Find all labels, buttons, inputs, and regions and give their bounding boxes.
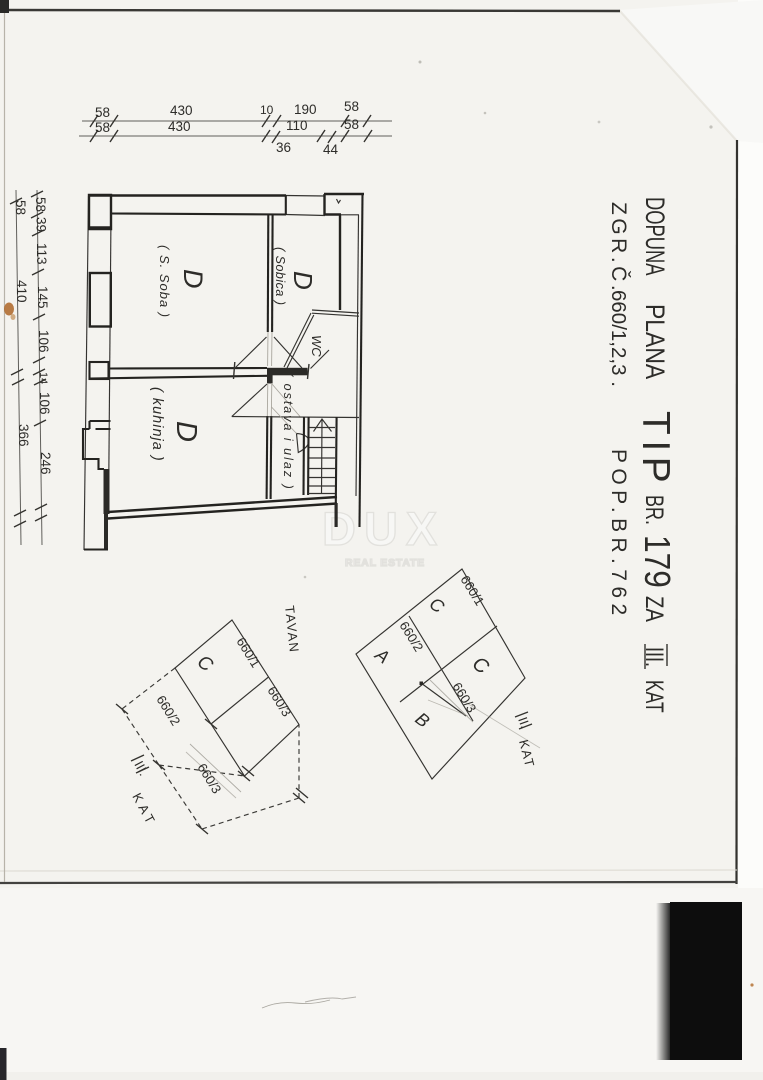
svg-text:D: D <box>178 269 208 289</box>
svg-text:PLANA: PLANA <box>640 304 670 379</box>
svg-text:58: 58 <box>344 99 359 114</box>
svg-text:113: 113 <box>34 243 49 265</box>
svg-text:14: 14 <box>37 372 49 384</box>
svg-text:430: 430 <box>170 103 193 118</box>
svg-text:145: 145 <box>35 286 50 309</box>
svg-text:REAL ESTATE: REAL ESTATE <box>345 557 425 569</box>
svg-text:430: 430 <box>168 119 191 134</box>
svg-text:58: 58 <box>95 105 110 120</box>
svg-text:( ostava i ulaz ): ( ostava i ulaz ) <box>281 372 295 491</box>
svg-text:246: 246 <box>38 452 53 475</box>
svg-text:ZA: ZA <box>641 596 670 623</box>
svg-text:110: 110 <box>286 118 308 133</box>
svg-text:106: 106 <box>37 392 52 415</box>
svg-text:D: D <box>170 421 202 442</box>
svg-text:106: 106 <box>36 330 51 353</box>
svg-text:10: 10 <box>260 103 274 117</box>
svg-text:39: 39 <box>34 217 49 232</box>
svg-text:( Sobica ): ( Sobica ) <box>273 247 287 306</box>
svg-text:179: 179 <box>637 535 677 588</box>
svg-text:58: 58 <box>344 117 359 132</box>
svg-text:POP.BR.762: POP.BR.762 <box>607 449 630 621</box>
svg-text:TIP: TIP <box>634 411 677 488</box>
svg-text:58: 58 <box>95 120 110 135</box>
svg-text:( S. Soba ): ( S. Soba ) <box>157 245 172 318</box>
svg-text:58: 58 <box>13 200 28 215</box>
svg-text:D: D <box>288 271 318 290</box>
svg-text:DUX: DUX <box>322 502 445 555</box>
svg-text:( kuhinja ): ( kuhinja ) <box>149 387 165 462</box>
svg-text:BR.: BR. <box>640 495 669 525</box>
svg-text:44: 44 <box>323 142 339 157</box>
svg-text:WC: WC <box>309 335 324 357</box>
svg-text:DOPUNA: DOPUNA <box>640 197 670 276</box>
svg-text:660/1,2,3 .: 660/1,2,3 . <box>607 290 630 387</box>
svg-text:KAT: KAT <box>640 680 669 713</box>
svg-text:366: 366 <box>16 424 31 447</box>
svg-text:58: 58 <box>33 197 48 212</box>
svg-text:410: 410 <box>14 280 29 303</box>
svg-text:ZGR.Č.: ZGR.Č. <box>607 202 630 294</box>
svg-text:190: 190 <box>294 102 317 117</box>
svg-text:36: 36 <box>276 140 291 155</box>
